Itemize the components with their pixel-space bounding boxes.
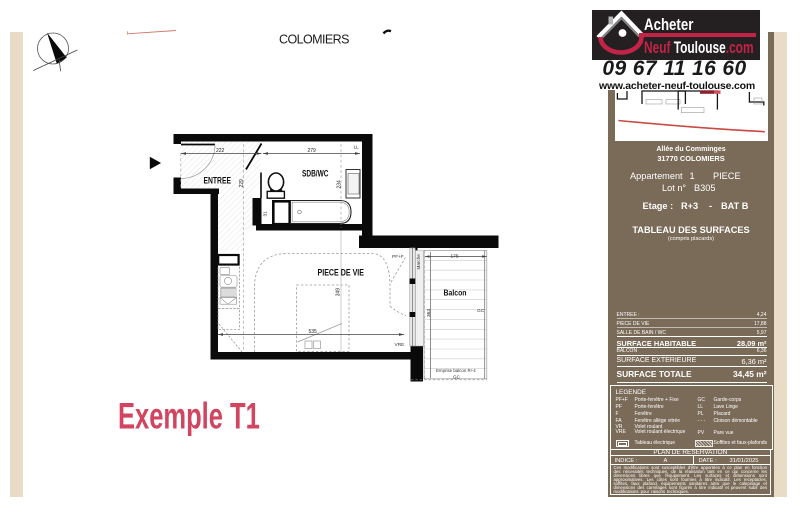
svg-text:GC: GC — [477, 308, 485, 314]
svg-text:Exemple T1: Exemple T1 — [118, 395, 260, 437]
svg-text:234: 234 — [336, 180, 342, 189]
svg-text:363: 363 — [426, 309, 432, 317]
svg-text:222: 222 — [216, 148, 225, 154]
svg-text:Marche: Marche — [416, 254, 421, 270]
svg-text:PF+F: PF+F — [392, 254, 404, 260]
svg-text:Balcon: Balcon — [444, 287, 467, 297]
svg-text:229: 229 — [239, 179, 245, 188]
svg-text:LL: LL — [354, 145, 360, 151]
svg-text:PIECE DE VIE: PIECE DE VIE — [318, 268, 365, 278]
svg-text:GC: GC — [453, 375, 461, 380]
svg-text:ENTREE: ENTREE — [204, 175, 232, 185]
svg-text:SDB/WC: SDB/WC — [302, 169, 329, 179]
svg-text:VRE: VRE — [395, 342, 405, 348]
svg-text:COLOMIERS: COLOMIERS — [279, 33, 350, 47]
svg-text:279: 279 — [308, 148, 317, 154]
svg-text:31: 31 — [263, 211, 268, 217]
svg-text:175: 175 — [451, 253, 459, 259]
svg-text:349: 349 — [336, 288, 342, 297]
svg-text:535: 535 — [309, 329, 318, 335]
svg-text:Emprise balcon R+4: Emprise balcon R+4 — [436, 368, 476, 373]
